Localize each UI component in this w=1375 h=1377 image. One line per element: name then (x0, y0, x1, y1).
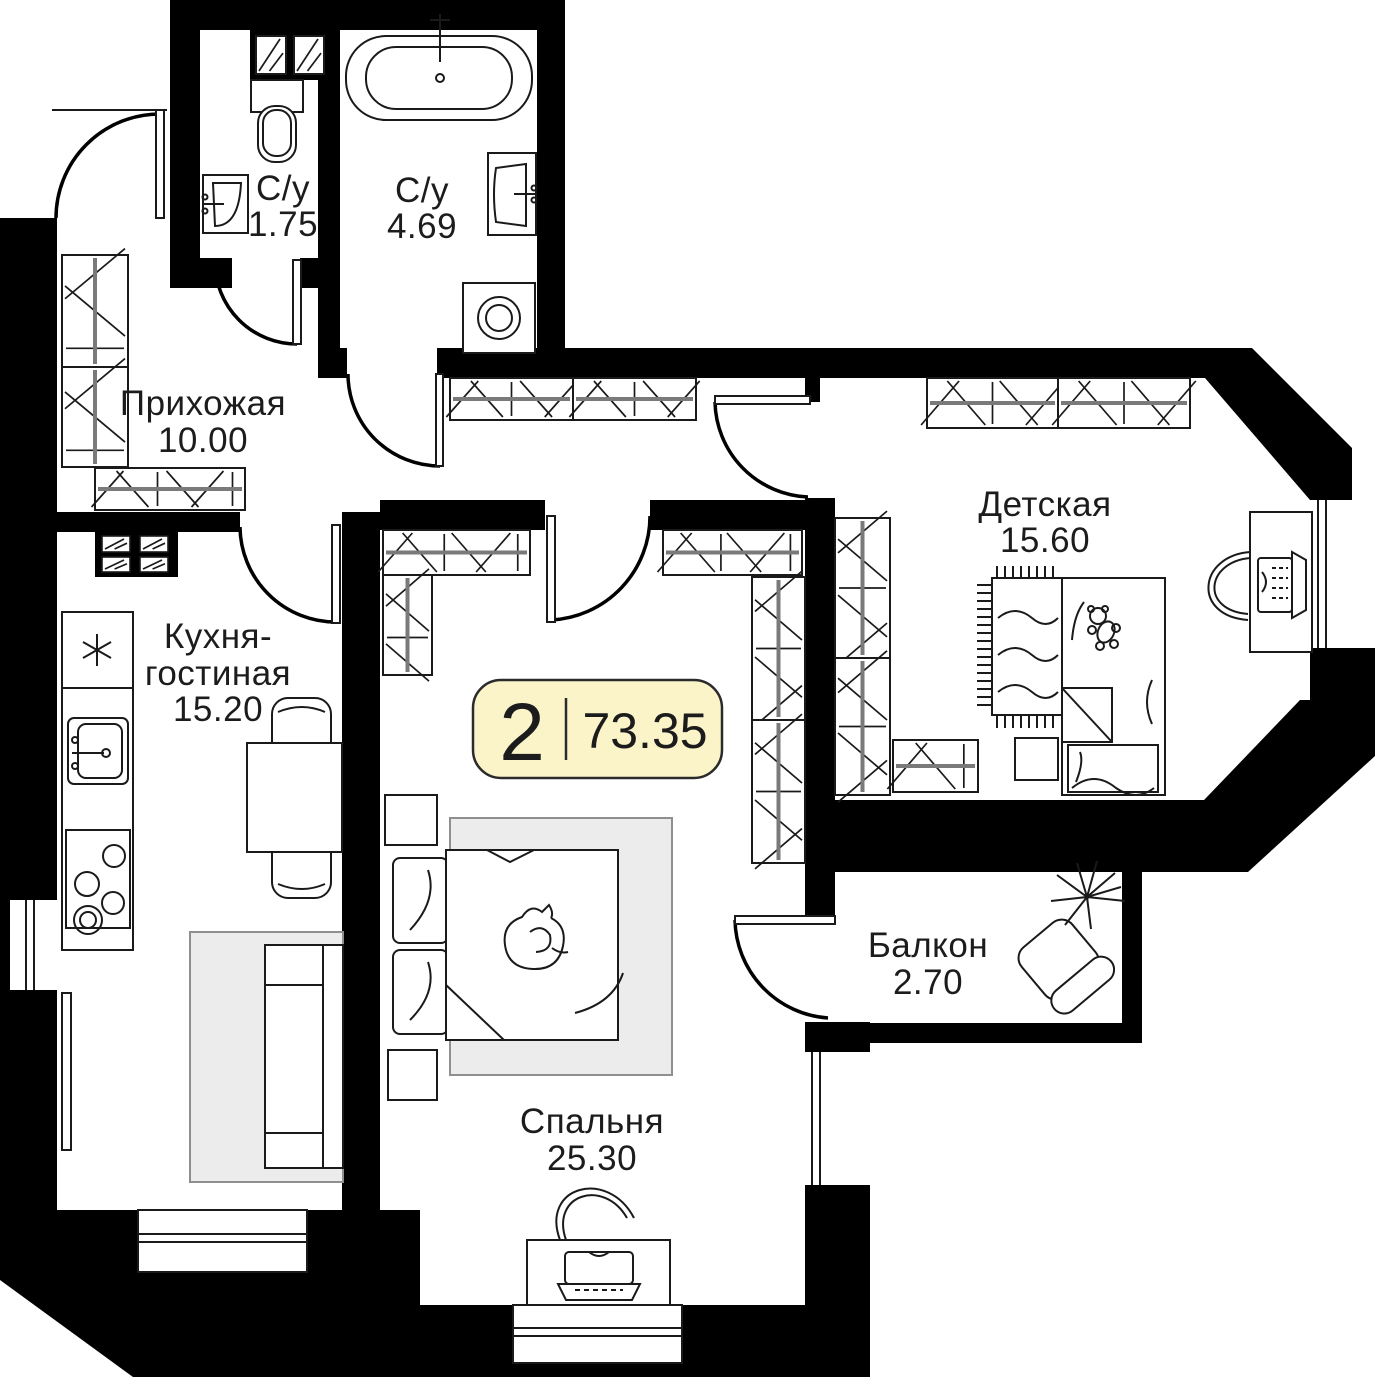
single-bed-icon (1062, 578, 1165, 795)
label-bathroom-small: С/у (256, 169, 310, 208)
nightstand-icon (1015, 738, 1058, 780)
sofa-icon (265, 945, 343, 1168)
label-children: Детская (978, 485, 1111, 524)
area-bathroom-small: 1.75 (248, 205, 318, 244)
badge-room-count: 2 (499, 687, 545, 778)
area-kitchen: 15.20 (173, 690, 263, 729)
door-kitchen (240, 525, 340, 623)
area-balcony: 2.70 (893, 963, 963, 1002)
door-children (715, 396, 810, 497)
label-balcony: Балкон (868, 926, 988, 965)
floor-plan-svg: С/у 1.75 С/у 4.69 Прихожая 10.00 Кухня- … (0, 0, 1375, 1377)
door-balcony (735, 916, 835, 1018)
door-bedroom (547, 516, 650, 622)
label-bathroom-large: С/у (395, 171, 449, 210)
room-balcony (1011, 861, 1125, 1019)
door-bathroom-large (348, 374, 443, 466)
armchair-icon (1011, 910, 1119, 1019)
area-hallway: 10.00 (158, 421, 248, 460)
label-bedroom: Спальня (520, 1102, 664, 1141)
apartment-badge: 2 73.35 (473, 680, 722, 778)
window-bedroom-south (513, 1305, 682, 1363)
rug (984, 572, 1062, 722)
desk-icon (1208, 512, 1312, 652)
label-kitchen-line2: гостиная (145, 654, 291, 693)
label-kitchen-line1: Кухня- (164, 617, 272, 656)
double-bed-icon (393, 818, 672, 1075)
kitchen-counter-icon (62, 612, 133, 950)
sink-icon (488, 153, 537, 235)
window-bedroom-east (805, 1052, 870, 1185)
toilet-icon (251, 80, 303, 162)
nightstand-icon (388, 1050, 437, 1100)
desk-icon (527, 1189, 670, 1305)
window-children-east (1310, 500, 1354, 648)
badge-total-area: 73.35 (582, 703, 707, 759)
washing-machine-icon (463, 283, 535, 353)
area-bathroom-large: 4.69 (387, 207, 457, 246)
area-children: 15.60 (1000, 521, 1090, 560)
label-hallway: Прихожая (120, 384, 286, 423)
room-children (835, 378, 1312, 802)
entry-door (52, 110, 167, 218)
area-bedroom: 25.30 (547, 1139, 637, 1178)
kitchen-sink-icon (68, 718, 128, 784)
nightstand-icon (385, 795, 437, 845)
window-kitchen-south (138, 1210, 307, 1272)
sink-icon (203, 175, 249, 233)
tv-icon (62, 993, 71, 1150)
floor-plan: С/у 1.75 С/у 4.69 Прихожая 10.00 Кухня- … (0, 0, 1375, 1377)
window-kitchen-west (26, 900, 34, 990)
